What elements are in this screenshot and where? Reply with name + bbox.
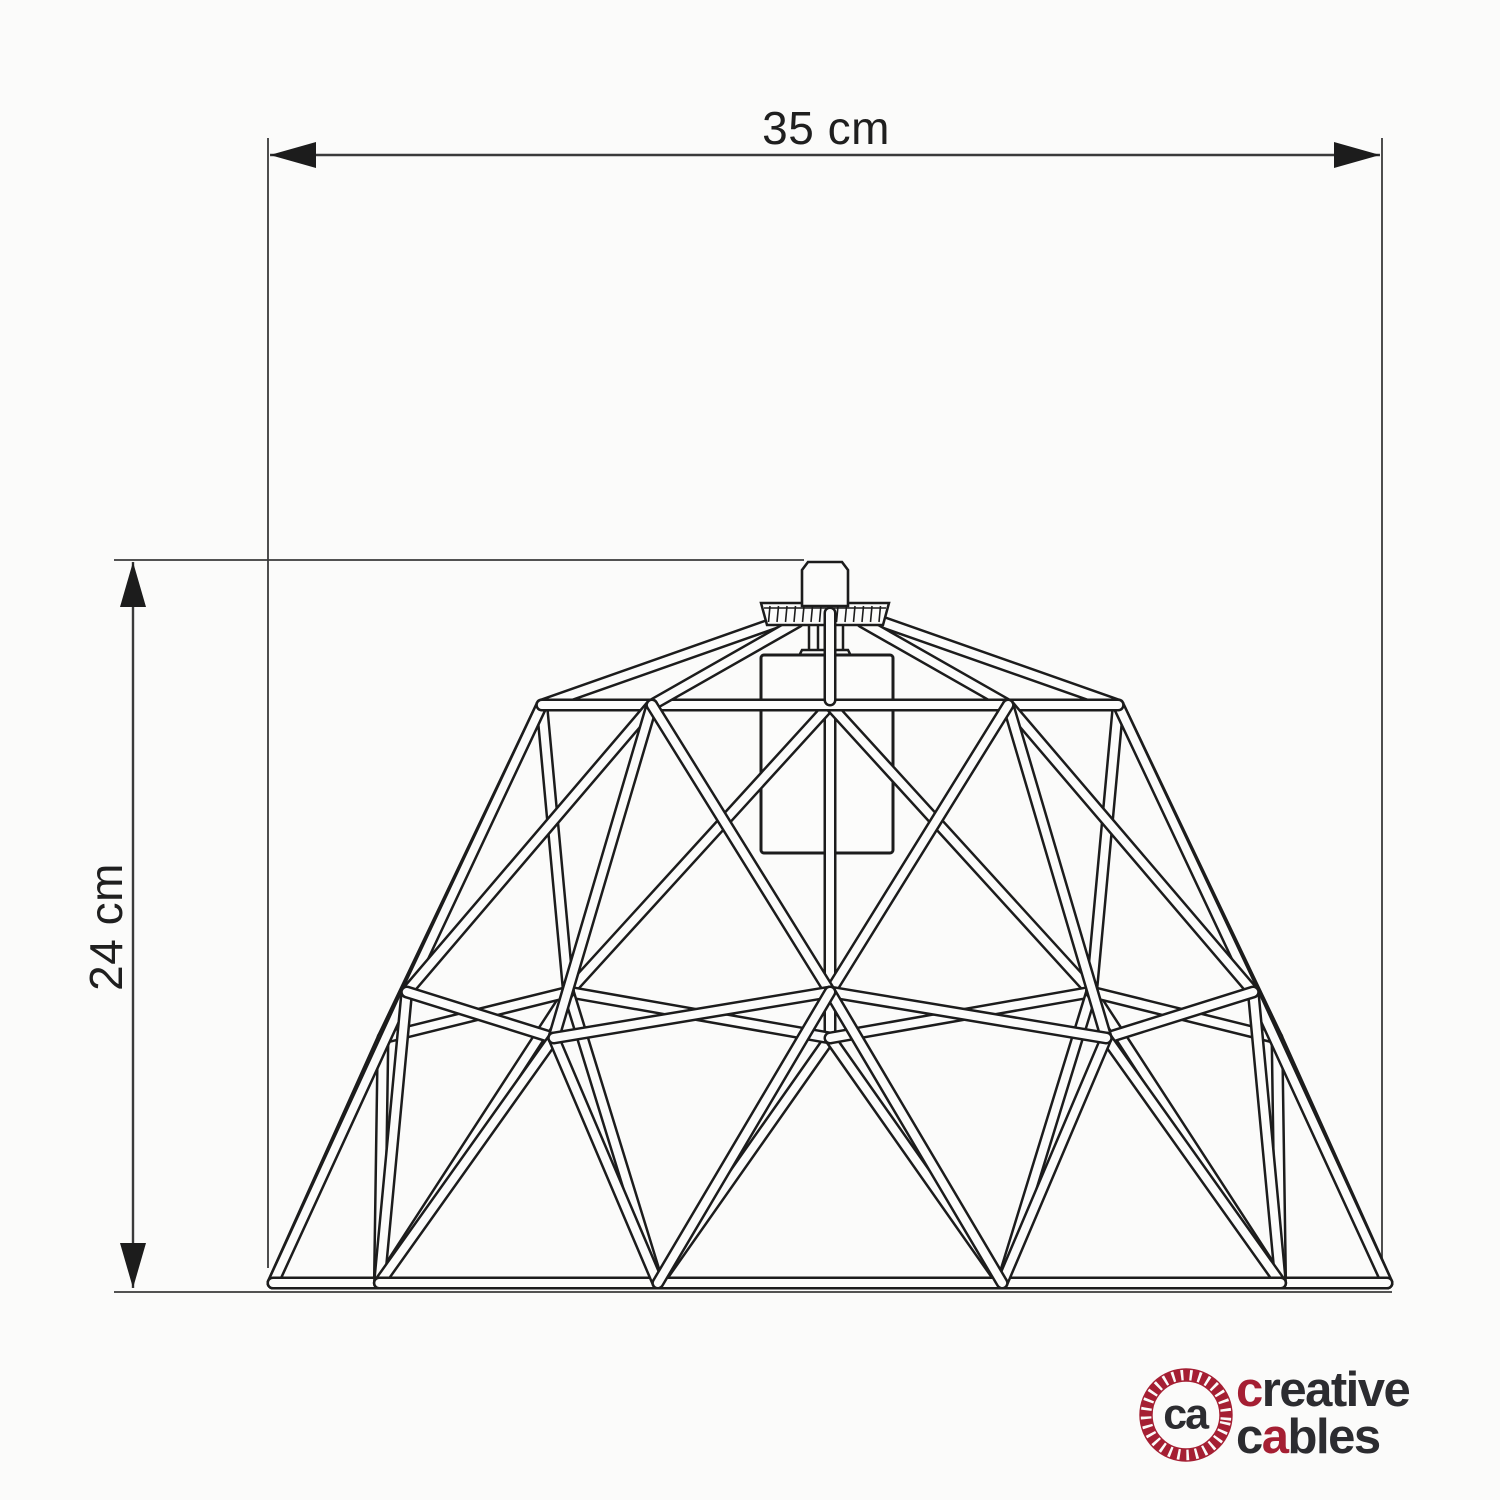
width-dimension-label: 35 cm (762, 101, 890, 155)
logo-word-creative: creative (1236, 1367, 1409, 1414)
dome-cage-wireframe (273, 622, 1387, 1283)
technical-drawing-canvas: 35 cm 24 cm ca creative cables (0, 0, 1500, 1500)
logo-word1-accent: c (1236, 1363, 1262, 1417)
arrow-left-icon (270, 142, 316, 168)
arrow-right-icon (1334, 142, 1380, 168)
arrow-up-icon (120, 562, 146, 607)
logo-word1-rest: reative (1262, 1363, 1410, 1417)
logo-word2-start: c (1236, 1410, 1262, 1464)
logo-word-cables: cables (1236, 1414, 1409, 1461)
height-dimension-label: 24 cm (79, 863, 133, 991)
logo-wordmark: creative cables (1236, 1367, 1409, 1461)
logo-monogram: ca (1163, 1391, 1207, 1440)
logo-rope-ring-icon: ca (1138, 1366, 1234, 1464)
cage-drawing-svg (0, 0, 1500, 1500)
logo-word2-rest: bles (1288, 1410, 1380, 1464)
creative-cables-logo: ca creative cables (1138, 1366, 1409, 1464)
logo-word2-accent: a (1262, 1410, 1288, 1464)
arrow-down-icon (120, 1243, 146, 1288)
top-cap (802, 562, 848, 606)
